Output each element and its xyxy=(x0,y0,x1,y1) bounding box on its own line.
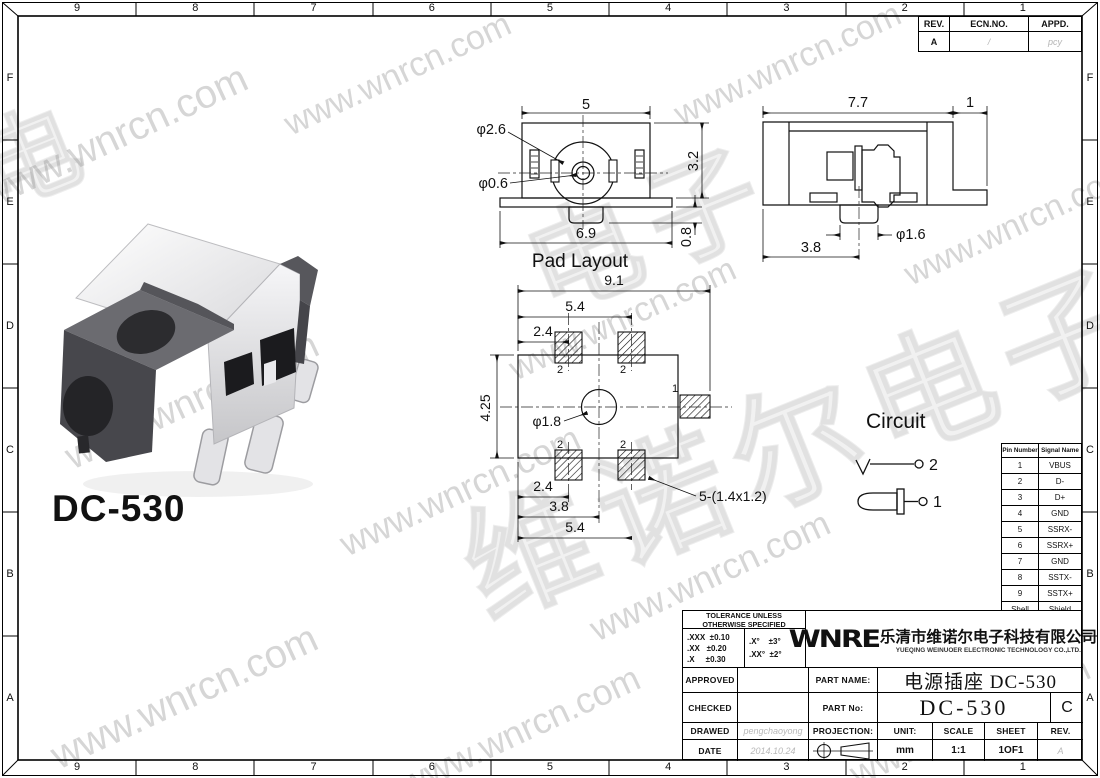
ruler-letter: C xyxy=(3,388,17,512)
checked-value xyxy=(738,692,809,722)
ruler-number: 3 xyxy=(727,761,845,774)
date-value: 2014.10.24 xyxy=(738,739,809,761)
pad-number: 2 xyxy=(620,439,626,451)
pin-number: 7 xyxy=(1002,554,1039,569)
pad-number: 1 xyxy=(672,383,678,395)
tolerance-linear: .XXX ±0.10 .XX ±0.20 .X ±0.30 xyxy=(683,629,745,667)
ruler-letter: B xyxy=(3,512,17,636)
ruler-letter: E xyxy=(1083,140,1097,264)
ruler-number: 8 xyxy=(136,761,254,774)
projection-symbol xyxy=(809,739,878,761)
contact-tab xyxy=(264,360,276,386)
tolerance-header: TOLERANCE UNLESS OTHERWISE SPECIFIED xyxy=(683,611,806,629)
circuit-pin1: 1 xyxy=(933,494,942,511)
sheet-label: SHEET xyxy=(985,722,1038,739)
date-label: DATE xyxy=(683,739,738,761)
part-no-rev: C xyxy=(1051,692,1083,722)
ecn-value: / xyxy=(949,32,1029,52)
rev-label: REV. xyxy=(1038,722,1083,739)
circuit-pin2: 2 xyxy=(929,457,938,474)
drawed-value: pengchaoyong xyxy=(738,722,809,739)
approved-value xyxy=(738,667,809,692)
dim-tab-height: 0.8 xyxy=(679,227,695,247)
product-label: DC-530 xyxy=(52,488,186,530)
ruler-number: 4 xyxy=(609,761,727,774)
pin-table-row: 3 D+ xyxy=(1002,489,1081,505)
projection-label: PROJECTION: xyxy=(809,722,878,739)
pin-number: 1 xyxy=(1002,458,1039,473)
company-block: WNRE 乐清市维诺尔电子科技有限公司 YUEQING WEINUOER ELE… xyxy=(806,611,1083,667)
part-name-value: 电源插座 DC-530 xyxy=(878,667,1083,692)
ruler-number: 1 xyxy=(964,2,1082,15)
ruler-letter: F xyxy=(1083,16,1097,140)
signal-name: GND xyxy=(1039,554,1081,569)
title-block: TOLERANCE UNLESS OTHERWISE SPECIFIED .XX… xyxy=(682,610,1082,760)
ruler-number: 4 xyxy=(609,2,727,15)
ruler-number: 9 xyxy=(18,761,136,774)
pad-size-note: 5-(1.4x1.2) xyxy=(699,488,767,504)
dim-pad-hole: φ1.8 xyxy=(532,413,561,429)
top-ruler: 987654321 xyxy=(18,2,1082,15)
rev-value: A xyxy=(919,32,949,52)
pad-number: 2 xyxy=(557,439,563,451)
ruler-number: 6 xyxy=(373,761,491,774)
ruler-number: 2 xyxy=(846,761,964,774)
side-view-drawing: 7.7 1 3.8 φ1.6 xyxy=(745,88,1055,268)
signal-name: D+ xyxy=(1039,490,1081,505)
pin-table-header-pin: Pin Number xyxy=(1002,444,1039,457)
dim-pin-offset: 3.8 xyxy=(801,240,821,256)
pin-table-header-signal: Signal Name xyxy=(1039,444,1081,457)
sheet-value: 1OF1 xyxy=(985,739,1038,761)
pin-number: 8 xyxy=(1002,570,1039,585)
appd-value: pcy xyxy=(1029,32,1081,52)
pin-number: 5 xyxy=(1002,522,1039,537)
circuit-diagram: 2 1 xyxy=(845,448,980,526)
signal-name: GND xyxy=(1039,506,1081,521)
pin-number: 9 xyxy=(1002,586,1039,601)
ruler-letter: B xyxy=(1083,512,1097,636)
ruler-letter: F xyxy=(3,16,17,140)
ruler-letter: D xyxy=(3,264,17,388)
rev-value: A xyxy=(1038,739,1083,761)
company-name-en: YUEQING WEINUOER ELECTRONIC TECHNOLOGY C… xyxy=(896,647,1081,654)
circuit-title: Circuit xyxy=(866,410,926,434)
dim-pad-offset-bottom: 2.4 xyxy=(533,478,553,494)
signal-name: VBUS xyxy=(1039,458,1081,473)
dim-hole-inner: φ0.6 xyxy=(478,176,508,192)
dim-pad-overall: 9.1 xyxy=(604,272,624,288)
pin-table-row: 7 GND xyxy=(1002,553,1081,569)
ruler-number: 2 xyxy=(846,2,964,15)
pin-table-row: 2 D- xyxy=(1002,473,1081,489)
dim-pad-offset-top: 2.4 xyxy=(533,323,553,339)
ruler-number: 3 xyxy=(727,2,845,15)
pin-table-row: 5 SSRX- xyxy=(1002,521,1081,537)
unit-label: UNIT: xyxy=(878,722,933,739)
pad-number: 2 xyxy=(557,364,563,376)
dim-side-width: 7.7 xyxy=(848,95,868,111)
scale-value: 1:1 xyxy=(933,739,985,761)
pin-table: Pin Number Signal Name 1 VBUS 2 D- 3 D+ xyxy=(1001,443,1082,618)
bottom-ruler: 987654321 xyxy=(18,761,1082,774)
ruler-number: 8 xyxy=(136,2,254,15)
dim-front-width: 5 xyxy=(582,97,590,113)
pin-table-row: 1 VBUS xyxy=(1002,457,1081,473)
company-logo: WNRE xyxy=(789,625,879,652)
pin-table-row: 4 GND xyxy=(1002,505,1081,521)
approved-label: APPROVED xyxy=(683,667,738,692)
dim-pad-span-top: 5.4 xyxy=(565,298,585,314)
dim-hole-outer: φ2.6 xyxy=(476,122,506,138)
ruler-number: 7 xyxy=(254,2,372,15)
unit-value: mm xyxy=(878,739,933,761)
scale-label: SCALE xyxy=(933,722,985,739)
signal-name: SSTX+ xyxy=(1039,586,1081,601)
dim-side-flange: 1 xyxy=(966,95,974,111)
pin-table-row: 6 SSRX+ xyxy=(1002,537,1081,553)
ruler-number: 9 xyxy=(18,2,136,15)
dim-pad-height: 4.25 xyxy=(477,394,493,421)
dim-pin-dia: φ1.6 xyxy=(896,227,926,243)
company-name-cn: 乐清市维诺尔电子科技有限公司 xyxy=(880,625,1097,647)
checked-label: CHECKED xyxy=(683,692,738,722)
pin-number: 3 xyxy=(1002,490,1039,505)
ruler-number: 5 xyxy=(491,761,609,774)
ruler-letter: D xyxy=(1083,264,1097,388)
ruler-letter: A xyxy=(3,636,17,760)
ruler-letter: E xyxy=(3,140,17,264)
pin-table-row: 9 SSTX+ xyxy=(1002,585,1081,601)
dim-pad-span-bottom: 5.4 xyxy=(565,519,585,535)
pad-number: 2 xyxy=(620,364,626,376)
part-no-value: DC-530 xyxy=(878,692,1051,722)
drawing-sheet: www.wnrcn.com www.wnrcn.com www.wnrcn.co… xyxy=(0,0,1100,778)
signal-name: SSRX+ xyxy=(1039,538,1081,553)
drawed-label: DRAWED xyxy=(683,722,738,739)
pin-number: 4 xyxy=(1002,506,1039,521)
part-name-label: PART NAME: xyxy=(809,667,878,692)
signal-name: D- xyxy=(1039,474,1081,489)
first-angle-projection-icon xyxy=(811,741,875,761)
part-no-label: PART No: xyxy=(809,692,878,722)
ruler-number: 7 xyxy=(254,761,372,774)
front-view-drawing: 5 φ2.6 φ0.6 3.2 6.9 0.8 Pad Layout xyxy=(430,85,730,280)
dim-pad-center-offset: 3.8 xyxy=(549,498,569,514)
pad-layout-drawing: 9.1 5.4 2.4 4.25 φ1.8 2.4 3.8 5.4 5-(1.4… xyxy=(440,268,785,563)
ecn-header: ECN.NO. xyxy=(949,17,1029,31)
revision-table: REV. ECN.NO. APPD. A / pcy xyxy=(918,16,1082,52)
ruler-letter: A xyxy=(1083,636,1097,760)
dim-front-height: 3.2 xyxy=(686,151,702,171)
left-ruler: FEDCBA xyxy=(3,16,17,760)
ruler-number: 6 xyxy=(373,2,491,15)
pin-table-row: 8 SSTX- xyxy=(1002,569,1081,585)
dim-front-bottom: 6.9 xyxy=(576,226,596,242)
signal-name: SSTX- xyxy=(1039,570,1081,585)
ruler-letter: C xyxy=(1083,388,1097,512)
pin-number: 2 xyxy=(1002,474,1039,489)
product-photo xyxy=(48,212,338,507)
ruler-number: 5 xyxy=(491,2,609,15)
rev-header: REV. xyxy=(919,17,949,31)
signal-name: SSRX- xyxy=(1039,522,1081,537)
ruler-number: 1 xyxy=(964,761,1082,774)
pin-number: 6 xyxy=(1002,538,1039,553)
appd-header: APPD. xyxy=(1029,17,1081,31)
